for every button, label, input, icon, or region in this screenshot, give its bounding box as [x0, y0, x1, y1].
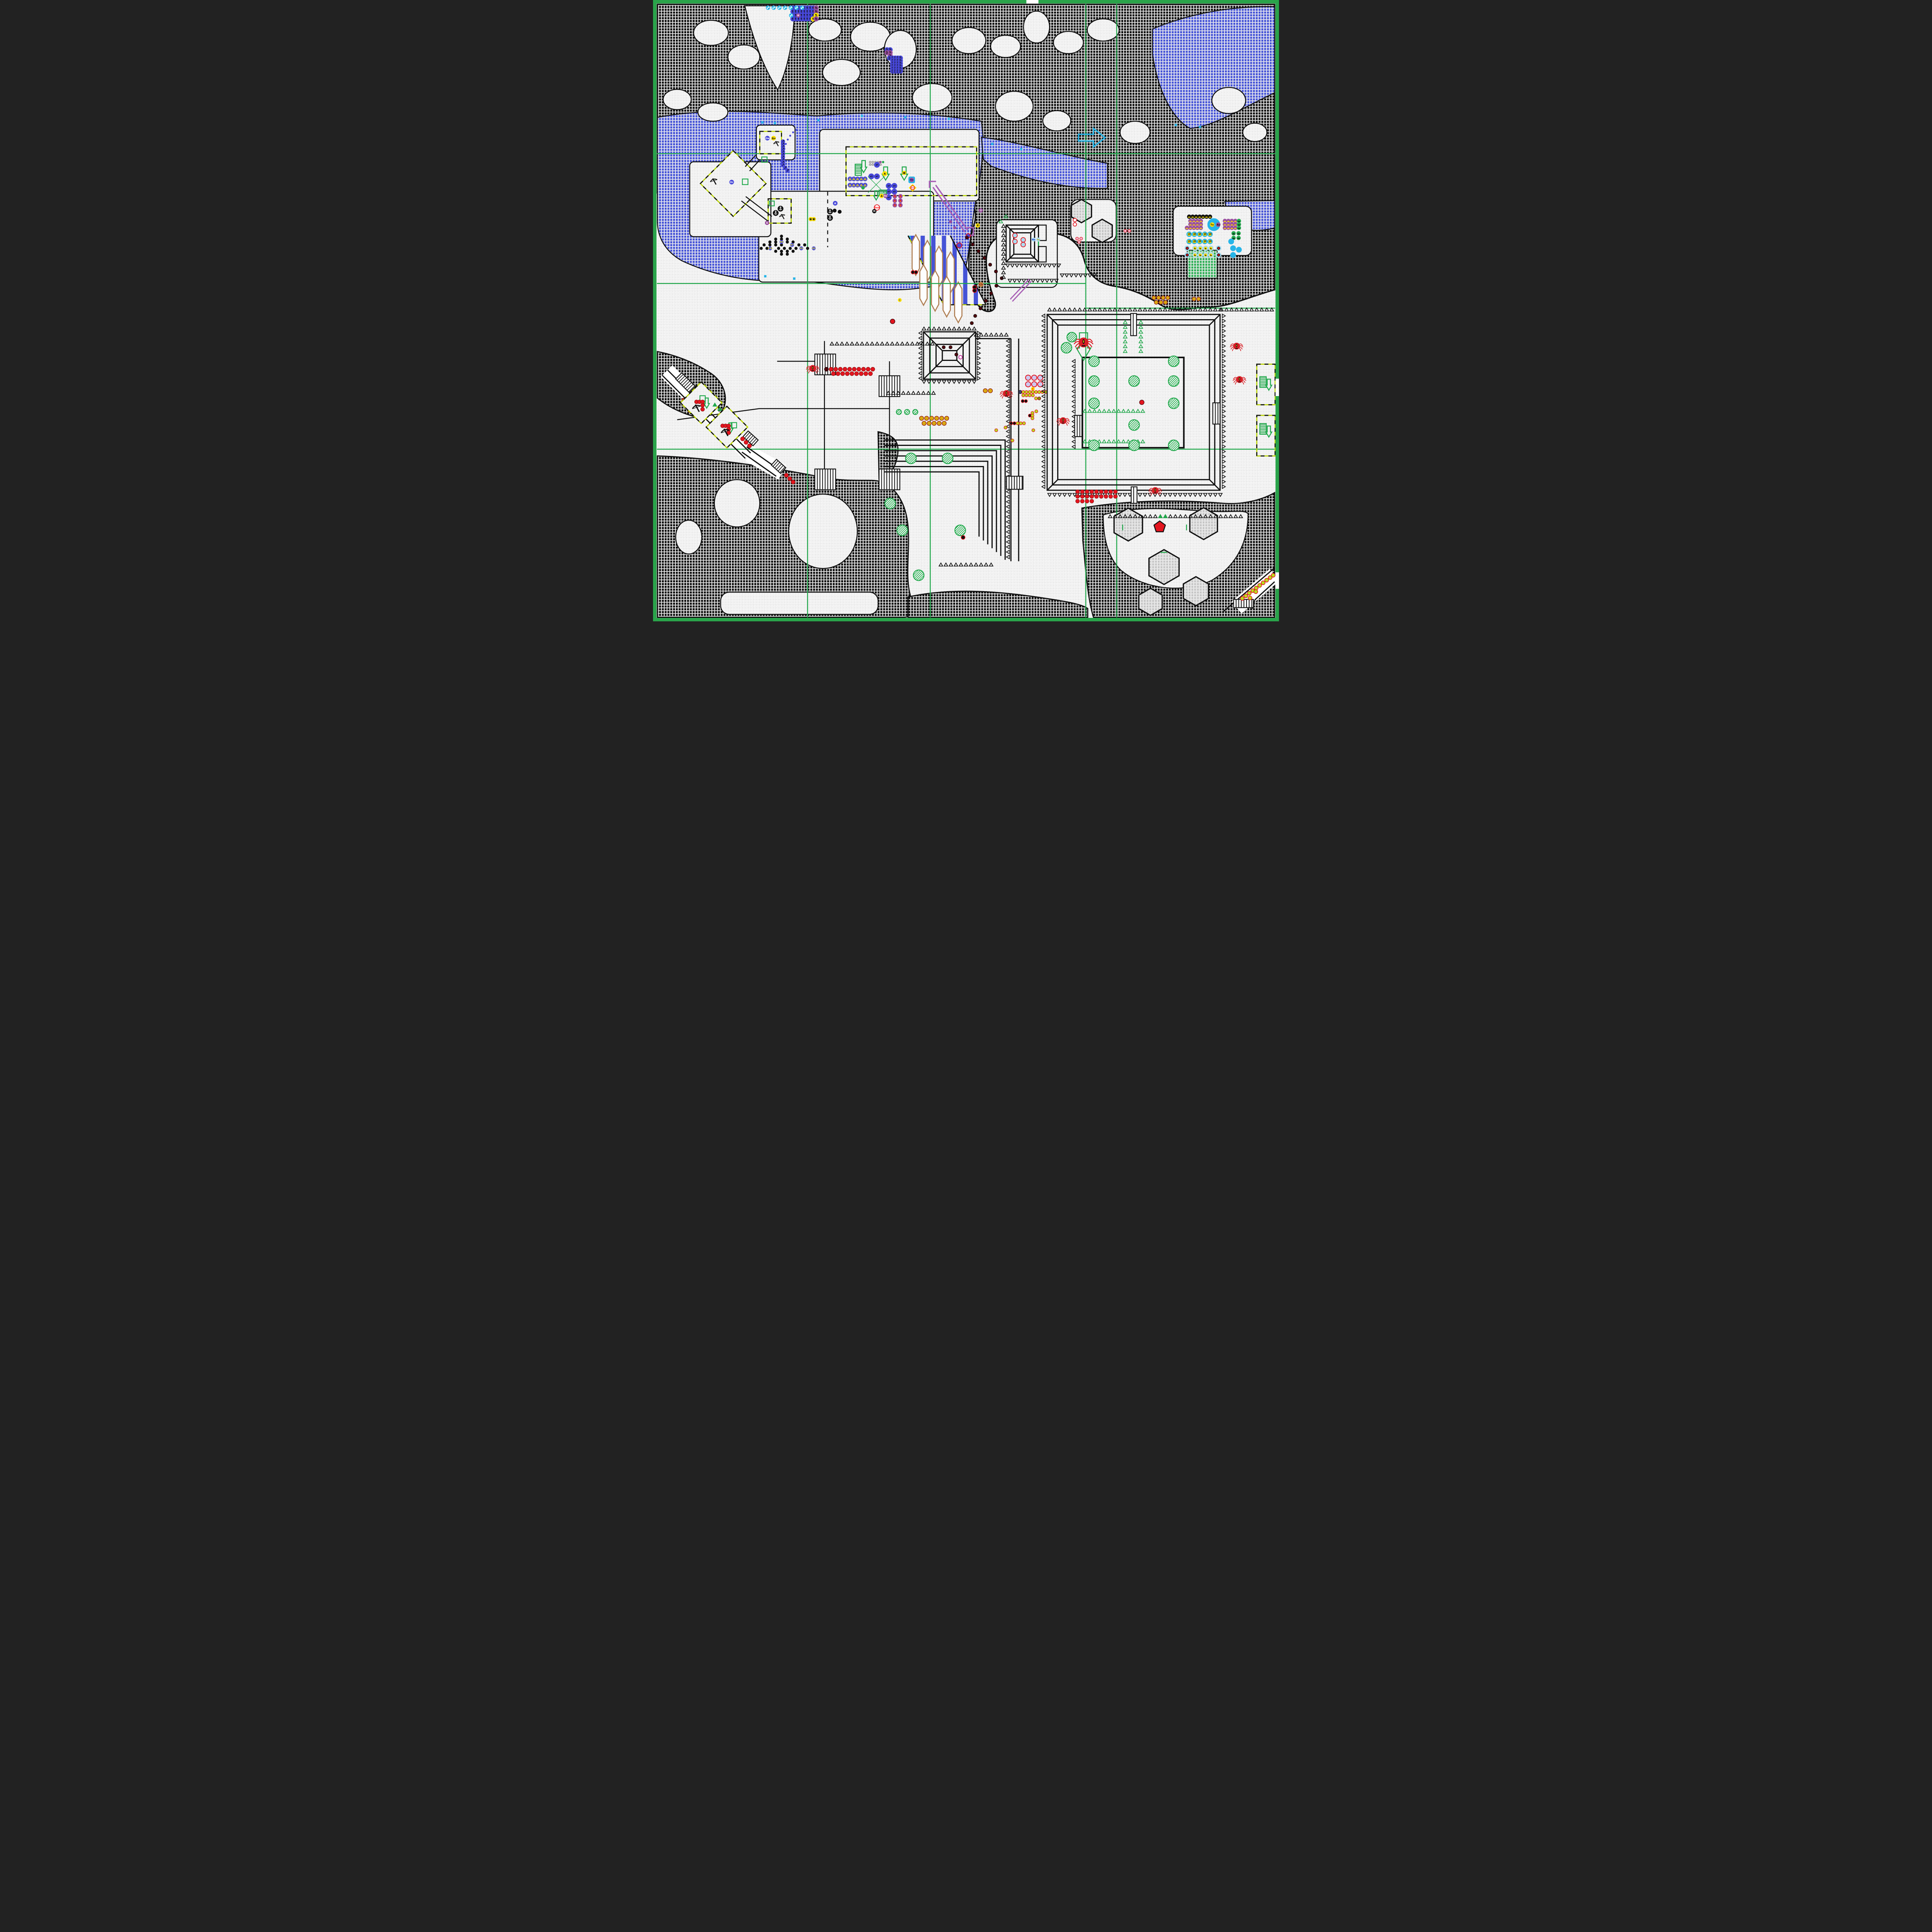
clearing: [995, 91, 1033, 121]
dot: [1152, 296, 1156, 300]
dot: [1095, 490, 1099, 494]
dot: [1236, 247, 1242, 253]
bush-hatched-circle: [1089, 440, 1100, 451]
boat-outline: [955, 282, 962, 323]
dot: [1271, 573, 1275, 577]
bone-knob: [778, 8, 779, 9]
fist-unit-dot: [891, 189, 897, 195]
target-unit-dot: [1185, 246, 1190, 251]
clearing: [1212, 87, 1246, 114]
dot: [1099, 490, 1103, 494]
bush-hatched-circle: [1089, 356, 1100, 367]
dot: [829, 367, 833, 371]
stairs-up-unit-dot: 1: [814, 17, 819, 22]
fire-unit-dot: [893, 199, 897, 203]
flame-core: [895, 197, 895, 197]
text-badge: До: [771, 136, 776, 141]
dot: [748, 444, 752, 448]
dot: [838, 367, 843, 371]
dot: [937, 421, 941, 425]
castle-unit-dot: [1236, 231, 1241, 235]
bone-knob: [797, 7, 798, 8]
dot: [942, 421, 946, 425]
dot: [1192, 297, 1196, 301]
dot: [974, 314, 977, 318]
clearing: [789, 494, 857, 569]
bone-item-dot: [777, 6, 782, 10]
dot: [940, 416, 944, 420]
dot: [1230, 245, 1236, 251]
label: А: [884, 172, 886, 175]
label: 4хп: [911, 187, 914, 189]
bush-hatched-circle: [896, 410, 901, 415]
dot: [1080, 499, 1084, 503]
bush-hatched-circle: [906, 453, 917, 464]
dot: [774, 240, 777, 243]
dot: [949, 220, 952, 223]
castle-unit-dot: [1199, 226, 1203, 230]
gate-icon: [1007, 476, 1023, 490]
text-badge: Ом: [765, 136, 770, 141]
dot: [994, 270, 998, 273]
shallow-water-cell: [764, 275, 767, 277]
dot: [1028, 394, 1031, 397]
dot: [879, 163, 882, 166]
anchor-icon: [773, 210, 779, 216]
bush-hatched-circle: [942, 453, 953, 464]
clearing: [912, 83, 952, 112]
boot-unit-dot: [1208, 252, 1214, 258]
boot-unit-dot: [1203, 252, 1208, 258]
archer-unit-dot: [898, 69, 903, 74]
dot: [1013, 422, 1016, 425]
bush-hatched-circle: [1168, 440, 1179, 451]
dot: [1032, 429, 1035, 432]
dot: [890, 319, 895, 324]
dot: [1013, 233, 1017, 238]
dot: [1104, 495, 1108, 498]
dot: [774, 250, 777, 253]
text-badge: К2: [812, 247, 816, 250]
dot: [1016, 422, 1019, 425]
label: Д: [881, 195, 883, 197]
dot: [961, 536, 965, 539]
boot-unit-dot: [1208, 246, 1214, 251]
clearing: [676, 520, 702, 554]
dot: [843, 367, 847, 371]
dot: [932, 421, 936, 425]
fly-body: [904, 172, 905, 174]
dot: [786, 238, 789, 241]
bush-hatched-circle: [885, 498, 896, 509]
spider-pupil: [1006, 392, 1007, 394]
gate-icon: [1213, 403, 1220, 424]
dot: [789, 247, 792, 250]
dot: [1080, 237, 1083, 240]
spider-mouth: [1062, 423, 1065, 423]
dot: [1114, 495, 1117, 498]
dot: [1078, 241, 1081, 244]
dot: [1156, 296, 1160, 300]
label: К2: [812, 248, 815, 250]
dot: [1128, 230, 1131, 233]
bush-hatched-circle: [1089, 398, 1100, 409]
dot: [1090, 490, 1094, 494]
fist-unit-dot: [886, 183, 892, 189]
bush-hatched-circle: [897, 525, 908, 536]
text-badge: С: [898, 298, 902, 302]
dot: [1109, 490, 1113, 494]
gate-frame: [1075, 415, 1082, 437]
fire-unit-dot: [893, 194, 897, 199]
dot: [786, 253, 789, 256]
dot: [780, 250, 783, 253]
clearing: [714, 480, 760, 527]
dot: [866, 367, 871, 371]
text-badge: М: [872, 209, 876, 213]
dot: [774, 243, 777, 247]
label: Та: [1211, 223, 1214, 226]
text-badge: Э: [979, 208, 983, 213]
dot: [1019, 422, 1022, 425]
label: К10: [768, 248, 772, 250]
dot: [1021, 400, 1024, 403]
boot-unit-dot: [1192, 252, 1198, 258]
dot: [852, 367, 857, 371]
dot: [984, 299, 988, 303]
frame-top: [653, 0, 1279, 3]
dot: [965, 236, 969, 240]
text-badge: Б: [765, 221, 769, 225]
clearing: [1024, 11, 1050, 43]
dot: [1099, 495, 1103, 498]
bone-item-dot: [794, 6, 799, 10]
bush-hatched-circle: [1129, 420, 1139, 430]
dot: [971, 243, 975, 246]
dot: [1085, 495, 1089, 498]
dot: [920, 416, 924, 420]
region-rect: [820, 129, 979, 201]
dot: [701, 407, 704, 411]
dot: [1022, 394, 1025, 397]
dot: [1010, 422, 1013, 425]
he-badge: Не: [908, 177, 915, 183]
dot: [848, 367, 852, 371]
dot: [864, 372, 868, 376]
dot: [841, 372, 845, 376]
dot: [869, 163, 871, 166]
boat-outline: [920, 265, 927, 305]
map-canvas[interactable]: 111111111111111111111111111111111111ИК9К…: [653, 0, 1279, 621]
label: Ау: [1217, 223, 1220, 226]
dot: [1265, 578, 1269, 582]
shallow-water-cell: [948, 118, 950, 120]
dot: [803, 243, 806, 247]
bone-knob: [784, 8, 785, 9]
fist-unit-dot: [874, 173, 880, 179]
dot: [1034, 391, 1037, 394]
flag-unit-dot: [1202, 239, 1207, 244]
label: До: [772, 137, 776, 140]
bone-knob: [792, 15, 793, 15]
dot: [1254, 590, 1258, 594]
dot: [798, 243, 801, 247]
anchor-icon: [778, 206, 784, 212]
dot: [1024, 400, 1027, 403]
dot: [872, 161, 874, 163]
dot: [1080, 495, 1084, 498]
bone-item-dot: [772, 6, 776, 10]
label: М: [873, 211, 876, 213]
flag-unit-dot: [1187, 231, 1192, 237]
clearing: [1243, 123, 1267, 142]
gate-icon: [1234, 599, 1253, 607]
label: К: [1032, 388, 1034, 390]
dot: [785, 143, 787, 145]
bone-knob: [791, 7, 792, 8]
dot: [970, 321, 974, 325]
bush-hatched-circle: [1067, 332, 1077, 342]
dot: [1032, 375, 1037, 381]
clearing: [823, 60, 861, 86]
text-badge: К7: [790, 243, 794, 247]
label: Э: [980, 210, 981, 212]
anchor-icon: [827, 209, 833, 214]
dot: [862, 367, 866, 371]
label: К5: [800, 248, 803, 250]
bush-hatched-circle: [1168, 376, 1179, 387]
dot: [792, 250, 795, 253]
flame-core: [895, 201, 895, 202]
dot: [789, 135, 791, 137]
bone-knob: [790, 16, 791, 17]
dot: [845, 372, 850, 376]
spider-mouth: [811, 370, 814, 371]
dot: [769, 243, 772, 247]
bone-knob: [786, 7, 786, 8]
text-badge: К5: [799, 247, 803, 250]
label: Ос: [730, 181, 733, 184]
dot: [959, 355, 962, 359]
dot: [1139, 400, 1144, 405]
boot-unit-dot: [1197, 252, 1203, 258]
fire-unit-dot: [898, 199, 903, 203]
shallow-water-cell: [991, 143, 993, 145]
flag-unit-dot: [1197, 239, 1202, 244]
bush-hatched-circle: [1129, 440, 1139, 451]
bush-hatched-circle: [1168, 398, 1179, 409]
boot-unit-dot: [1197, 246, 1203, 251]
axe-unit-dot: [786, 168, 790, 173]
dot: [763, 243, 766, 247]
dot: [1154, 301, 1158, 304]
flag-unit-dot: [1207, 239, 1213, 244]
dot: [788, 477, 792, 481]
frame-gap-top: [1026, 0, 1038, 3]
dot: [838, 210, 842, 214]
label: С: [899, 299, 901, 301]
quarry-hexagon: [1092, 219, 1112, 243]
dot: [1026, 375, 1031, 381]
bone-knob: [803, 7, 804, 8]
dot: [777, 247, 780, 250]
boat-outline: [943, 276, 951, 317]
dot: [882, 161, 884, 163]
bone-knob: [773, 8, 774, 9]
dot: [949, 346, 952, 349]
label: Ма: [1032, 239, 1035, 241]
dot: [1261, 581, 1265, 585]
dot: [1254, 586, 1258, 590]
shallow-water-cell: [793, 277, 796, 280]
dot: [1038, 391, 1041, 394]
flag-unit-dot: [1192, 239, 1197, 244]
dot: [1076, 495, 1080, 498]
flag-unit-dot: [1207, 231, 1213, 237]
fly-body: [810, 218, 811, 221]
dot: [983, 389, 988, 393]
label: К9: [780, 241, 783, 243]
shallow-water-cell: [774, 122, 776, 124]
gate-icon: [815, 469, 836, 490]
bush-hatched-circle: [1061, 342, 1072, 353]
dot: [1230, 252, 1236, 258]
dot: [769, 240, 772, 243]
dot: [834, 367, 838, 371]
dot: [780, 253, 783, 256]
dot: [1076, 237, 1079, 240]
dot: [825, 367, 829, 371]
dot: [922, 421, 926, 425]
game-map[interactable]: 111111111111111111111111111111111111ИК9К…: [653, 0, 1279, 621]
bone-item-dot: [789, 6, 793, 10]
boot-unit-dot: [1203, 246, 1208, 251]
fist-unit-dot: [891, 183, 897, 189]
boat-outline: [932, 270, 939, 311]
shallow-water-cell: [1020, 148, 1022, 150]
shallow-water-cell: [1199, 126, 1201, 128]
dot: [995, 284, 998, 287]
dot: [988, 389, 993, 393]
text-badge: Ау: [1216, 223, 1221, 227]
dot: [1021, 242, 1026, 247]
dot: [784, 473, 789, 478]
dot: [1159, 301, 1163, 304]
dot: [787, 139, 789, 141]
dot: [1022, 391, 1025, 394]
bone-knob: [769, 7, 769, 8]
bone-knob: [774, 7, 775, 8]
bush-hatched-circle: [913, 570, 924, 581]
gate-icon: [1075, 415, 1082, 437]
bush-hatched-circle: [1168, 356, 1179, 367]
clearing: [698, 103, 728, 121]
dot: [957, 243, 962, 248]
bush-hatched-circle: [1089, 376, 1100, 387]
dot: [774, 238, 777, 241]
gate-frame: [1213, 403, 1220, 424]
dot: [927, 421, 931, 425]
text-badge: Чу: [1036, 238, 1041, 242]
dot: [925, 416, 929, 420]
dot: [1011, 439, 1014, 442]
dot: [871, 367, 875, 371]
castle-unit-dot: [1231, 231, 1236, 235]
dot: [1244, 594, 1248, 598]
label: И: [834, 202, 836, 205]
flag-unit-dot: [1197, 231, 1202, 237]
dot: [1114, 490, 1117, 494]
spider-pupil: [813, 367, 813, 369]
shallow-water-cell: [817, 119, 820, 121]
dot: [836, 372, 840, 376]
bone-knob: [801, 8, 802, 9]
frame-left: [653, 0, 656, 621]
dot: [744, 440, 748, 445]
gate-icon: [1131, 313, 1136, 336]
bone-knob: [780, 7, 781, 8]
region-rect: [757, 125, 795, 160]
dot: [786, 240, 789, 243]
region-rect: [759, 191, 934, 282]
text-badge: А: [882, 171, 887, 176]
frame-bottom: [653, 618, 1279, 621]
dot: [1109, 495, 1113, 498]
label: 33х: [978, 283, 984, 286]
bush-hatched-circle: [905, 410, 910, 415]
dot: [1166, 296, 1170, 300]
clearing: [728, 45, 760, 69]
bone-item-dot: [783, 6, 787, 10]
dot: [930, 416, 934, 420]
dot: [857, 367, 861, 371]
dot: [1031, 394, 1034, 397]
dot: [850, 372, 854, 376]
bone-knob: [796, 8, 796, 9]
bush-hatched-circle: [1129, 376, 1139, 387]
spider-mouth: [1082, 345, 1085, 346]
dot: [1248, 596, 1252, 600]
fire-unit-dot: [898, 203, 903, 207]
label: 0хп: [874, 206, 880, 209]
boat-outline: [912, 235, 920, 276]
bush-hatched-circle: [913, 410, 918, 415]
dot: [794, 247, 798, 250]
fire-unit-dot: [893, 203, 897, 207]
dot: [872, 163, 874, 166]
frame-gap-right: [1276, 572, 1279, 589]
target-unit-dot: [1216, 246, 1221, 251]
dot: [1031, 391, 1034, 394]
gate-frame: [1234, 599, 1253, 607]
dot: [1161, 296, 1165, 300]
dot: [1258, 583, 1262, 587]
fly-badge: [812, 217, 816, 221]
dot: [1073, 223, 1077, 226]
dot: [1026, 382, 1031, 387]
dot: [780, 235, 783, 238]
clearing: [1120, 121, 1150, 144]
castle-unit-dot: [1237, 226, 1241, 230]
dot: [1073, 218, 1077, 222]
text-badge: Ма: [1032, 238, 1036, 242]
label: К7: [791, 244, 794, 247]
dot: [1085, 490, 1089, 494]
bone-item-dot: [766, 6, 770, 10]
dot: [806, 247, 809, 250]
clearing: [663, 89, 691, 110]
dot: [1090, 499, 1094, 503]
